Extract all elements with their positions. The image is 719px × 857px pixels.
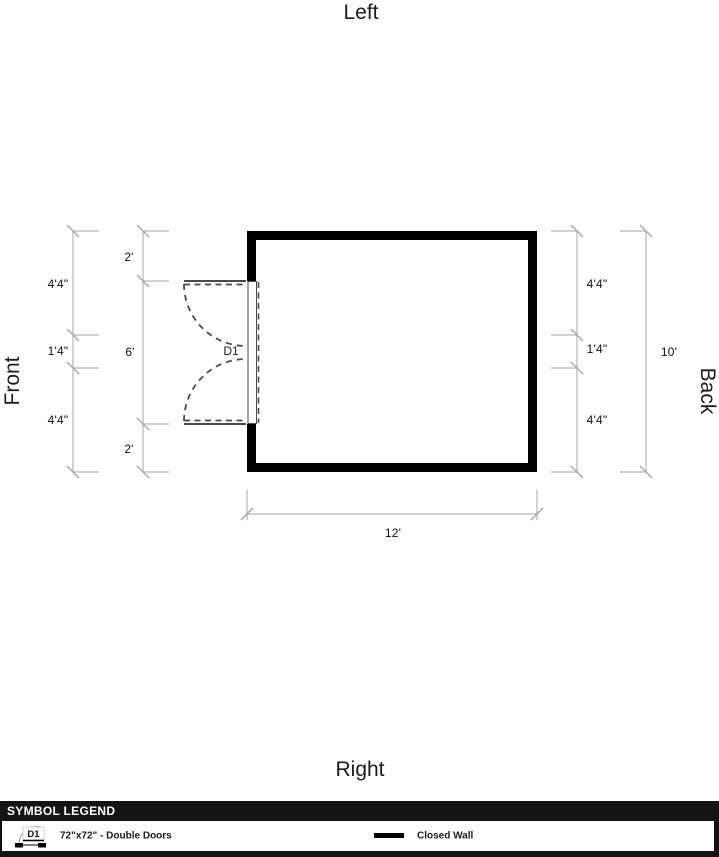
dim-left-outer-2: 1'4" <box>48 344 69 358</box>
dimension-tick-marks <box>67 225 652 520</box>
dim-right-inner-3: 4'4" <box>587 413 608 427</box>
svg-text:D1: D1 <box>27 829 40 840</box>
door-swing-arc-bottom <box>184 359 246 421</box>
closed-wall-sample-line <box>374 833 404 838</box>
floor-plan-page: Left Right Front Back <box>0 0 719 857</box>
dimension-lines <box>73 231 646 520</box>
room-walls <box>247 231 537 472</box>
dim-left-outer-3: 4'4" <box>48 413 69 427</box>
legend-item-double-doors-label: 72"x72" - Double Doors <box>60 831 172 842</box>
dim-right-outer: 10' <box>661 345 677 359</box>
legend-row: D1 72"x72" - Double Doors Closed Wall <box>0 821 719 851</box>
door-frame <box>248 282 257 424</box>
dim-right-inner-1: 4'4" <box>587 277 608 291</box>
double-door-symbol <box>184 281 259 424</box>
dim-left-inner-3: 2' <box>124 442 133 456</box>
door-tag: D1 <box>223 344 238 358</box>
dim-left-inner-1: 2' <box>124 250 133 264</box>
dim-left-inner-2: 6' <box>125 345 134 359</box>
dim-bottom: 12' <box>385 526 401 540</box>
double-door-legend-icon: D1 <box>13 825 49 849</box>
legend-bottom-border <box>0 851 719 857</box>
legend-header: SYMBOL LEGEND <box>0 801 719 821</box>
door-swing-arc-top <box>184 284 246 346</box>
legend-item-closed-wall-label: Closed Wall <box>417 831 473 842</box>
dim-left-outer-1: 4'4" <box>48 277 69 291</box>
dim-right-inner-2: 1'4" <box>587 342 608 356</box>
legend-title: SYMBOL LEGEND <box>7 804 115 818</box>
floor-plan-drawing <box>0 0 719 857</box>
